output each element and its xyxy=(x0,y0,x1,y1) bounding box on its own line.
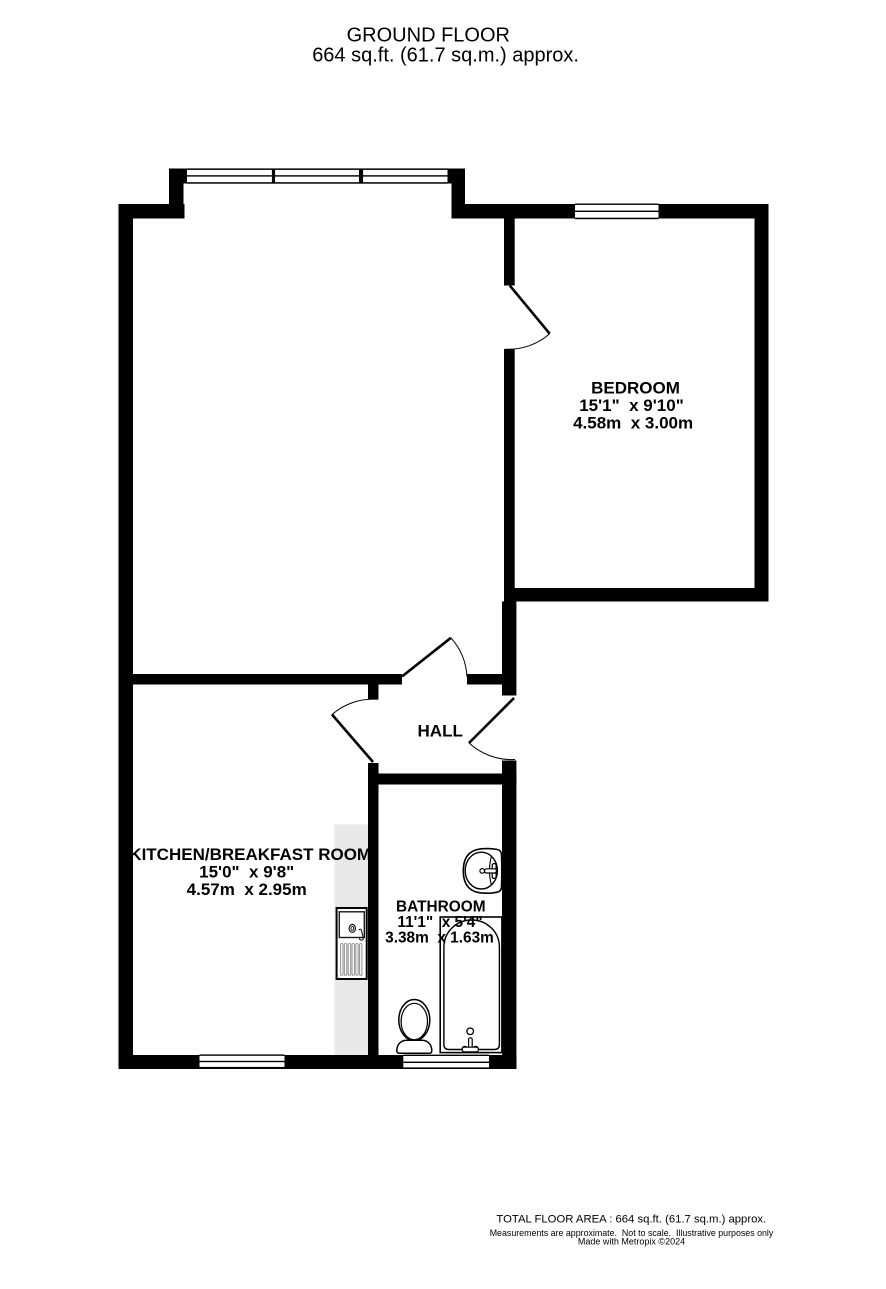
svg-text:664 sq.ft. (61.7 sq.m.) approx: 664 sq.ft. (61.7 sq.m.) approx. xyxy=(312,44,579,66)
svg-text:KITCHEN/BREAKFAST ROOM: KITCHEN/BREAKFAST ROOM xyxy=(129,845,371,864)
svg-text:Made with Metropix ©2024: Made with Metropix ©2024 xyxy=(578,1236,685,1246)
svg-text:4.58m x 3.00m: 4.58m x 3.00m xyxy=(573,413,693,432)
svg-text:3.38m x 1.63m: 3.38m x 1.63m xyxy=(385,929,494,946)
svg-text:BEDROOM: BEDROOM xyxy=(591,379,680,398)
svg-text:HALL: HALL xyxy=(418,722,463,741)
svg-text:15'0" x 9'8": 15'0" x 9'8" xyxy=(199,863,294,882)
svg-text:15'1" x 9'10": 15'1" x 9'10" xyxy=(579,396,684,415)
svg-text:BATHROOM: BATHROOM xyxy=(396,898,485,915)
svg-text:TOTAL FLOOR AREA : 664 sq.ft.: TOTAL FLOOR AREA : 664 sq.ft. (61.7 sq.m… xyxy=(496,1214,766,1226)
svg-text:11'1" x 5'4": 11'1" x 5'4" xyxy=(397,914,482,931)
svg-text:GROUND FLOOR: GROUND FLOOR xyxy=(347,24,510,46)
svg-text:4.57m x 2.95m: 4.57m x 2.95m xyxy=(187,880,307,899)
